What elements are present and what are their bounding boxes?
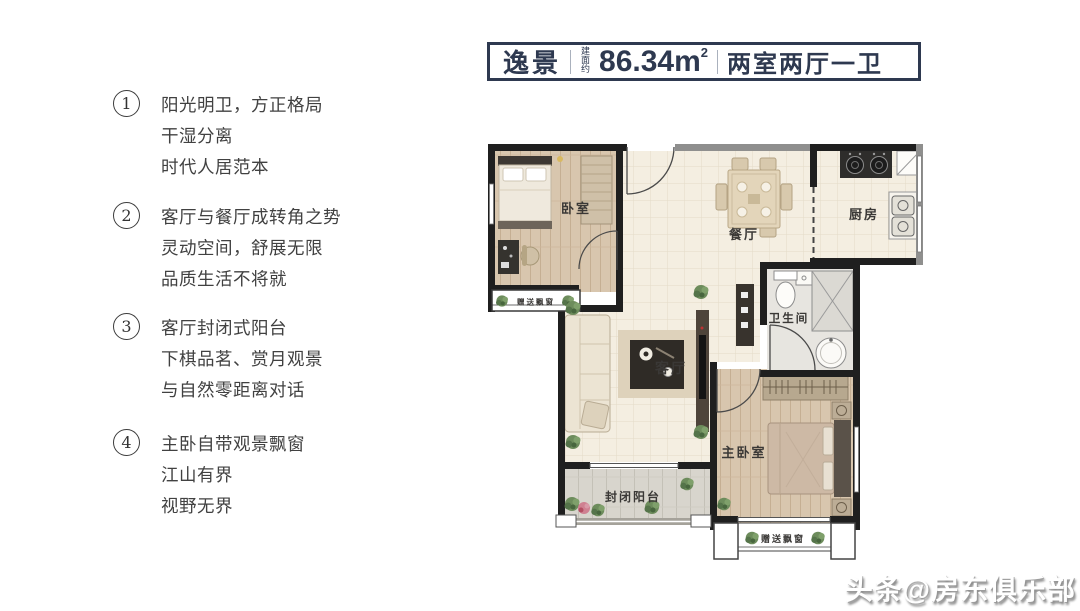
window: [490, 184, 494, 224]
kitchen-label: 厨房: [849, 207, 879, 222]
nightstand: [832, 402, 851, 419]
kitchen-sink: [889, 192, 917, 239]
sofa: [565, 315, 610, 432]
feature-number-badge: 1: [113, 90, 140, 117]
floorplan: 卧室 餐厅 厨房 卫生间 客厅 主卧室 封闭阳台 赠送飘窗 赠送飘窗: [480, 132, 930, 570]
window: [590, 464, 678, 468]
feature-line: 主卧自带观景飘窗: [161, 429, 305, 460]
dining-label: 餐厅: [728, 227, 759, 242]
feature-line: 时代人居范本: [161, 152, 323, 183]
toilet: [774, 271, 797, 308]
area-prefix: 建面约: [580, 46, 590, 78]
master-bed: [768, 420, 851, 497]
feature-number-badge: 2: [113, 202, 140, 229]
bedroom-label: 卧室: [561, 201, 591, 216]
nightstand: [832, 499, 851, 516]
tv-console: [696, 310, 709, 432]
master-bedroom-label: 主卧室: [721, 445, 766, 460]
feature-number-badge: 4: [113, 429, 140, 456]
area-value: 86.34m2: [599, 45, 708, 79]
area-superscript: 2: [701, 45, 708, 60]
window: [918, 156, 922, 202]
lamp-icon: [557, 156, 563, 162]
feature-line: 干湿分离: [161, 121, 323, 152]
feature-line: 江山有界: [161, 460, 305, 491]
balcony-label: 封闭阳台: [605, 489, 661, 504]
living-label: 客厅: [654, 360, 687, 376]
washbasin: [816, 338, 846, 368]
title-bar: 逸景 建面约 86.34m2 两室两厅一卫: [487, 42, 921, 81]
area-number: 86.34m: [599, 45, 701, 79]
vanity: [796, 271, 812, 285]
feature-line: 客厅封闭式阳台: [161, 313, 323, 344]
stove: [840, 151, 892, 178]
feature-line: 阳光明卫，方正格局: [161, 90, 323, 121]
title-divider: [717, 50, 718, 74]
layout-type: 两室两厅一卫: [727, 44, 883, 79]
feature-item-2: 2 客厅与餐厅成转角之势 灵动空间，舒展无限 品质生活不将就: [113, 202, 443, 295]
project-name: 逸景: [503, 43, 561, 80]
feature-item-1: 1 阳光明卫，方正格局 干湿分离 时代人居范本: [113, 90, 443, 183]
feature-item-3: 3 客厅封闭式阳台 下棋品茗、赏月观景 与自然零距离对话: [113, 313, 443, 406]
feature-number-badge: 3: [113, 313, 140, 340]
watermark: 头条@房东俱乐部: [845, 568, 1076, 608]
feature-line: 客厅与餐厅成转角之势: [161, 202, 341, 233]
desk: [498, 240, 519, 274]
master-wardrobe: [763, 374, 848, 400]
bathroom-label: 卫生间: [769, 311, 810, 325]
bay-window-small-label: 赠送飘窗: [517, 297, 555, 307]
entry-cabinet: [736, 284, 754, 346]
feature-item-4: 4 主卧自带观景飘窗 江山有界 视野无界: [113, 429, 443, 522]
feature-line: 与自然零距离对话: [161, 375, 323, 406]
title-divider: [570, 50, 571, 74]
feature-line: 视野无界: [161, 491, 305, 522]
shower: [812, 271, 853, 331]
window: [918, 206, 922, 252]
window: [738, 518, 830, 522]
feature-line: 下棋品茗、赏月观景: [161, 344, 323, 375]
bay-window-master-label: 赠送飘窗: [761, 533, 805, 544]
feature-line: 灵动空间，舒展无限: [161, 233, 341, 264]
bed: [498, 156, 552, 229]
feature-line: 品质生活不将就: [161, 264, 341, 295]
window: [855, 427, 859, 492]
